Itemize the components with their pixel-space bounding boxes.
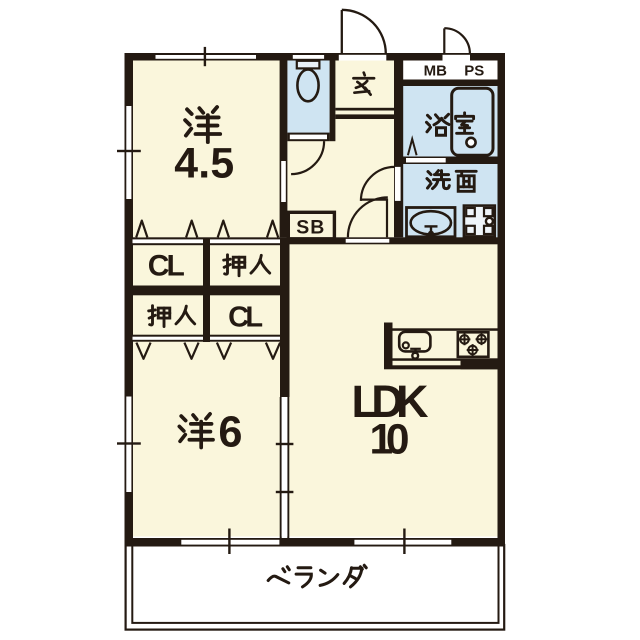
svg-text:SB: SB — [296, 216, 324, 238]
svg-text:CL: CL — [148, 250, 185, 283]
svg-text:PS: PS — [464, 63, 484, 80]
svg-text:CL: CL — [228, 302, 263, 334]
svg-text:10: 10 — [370, 416, 410, 463]
svg-text:MB: MB — [424, 63, 447, 80]
svg-text:6: 6 — [218, 408, 242, 456]
svg-text:4.5: 4.5 — [174, 140, 234, 188]
